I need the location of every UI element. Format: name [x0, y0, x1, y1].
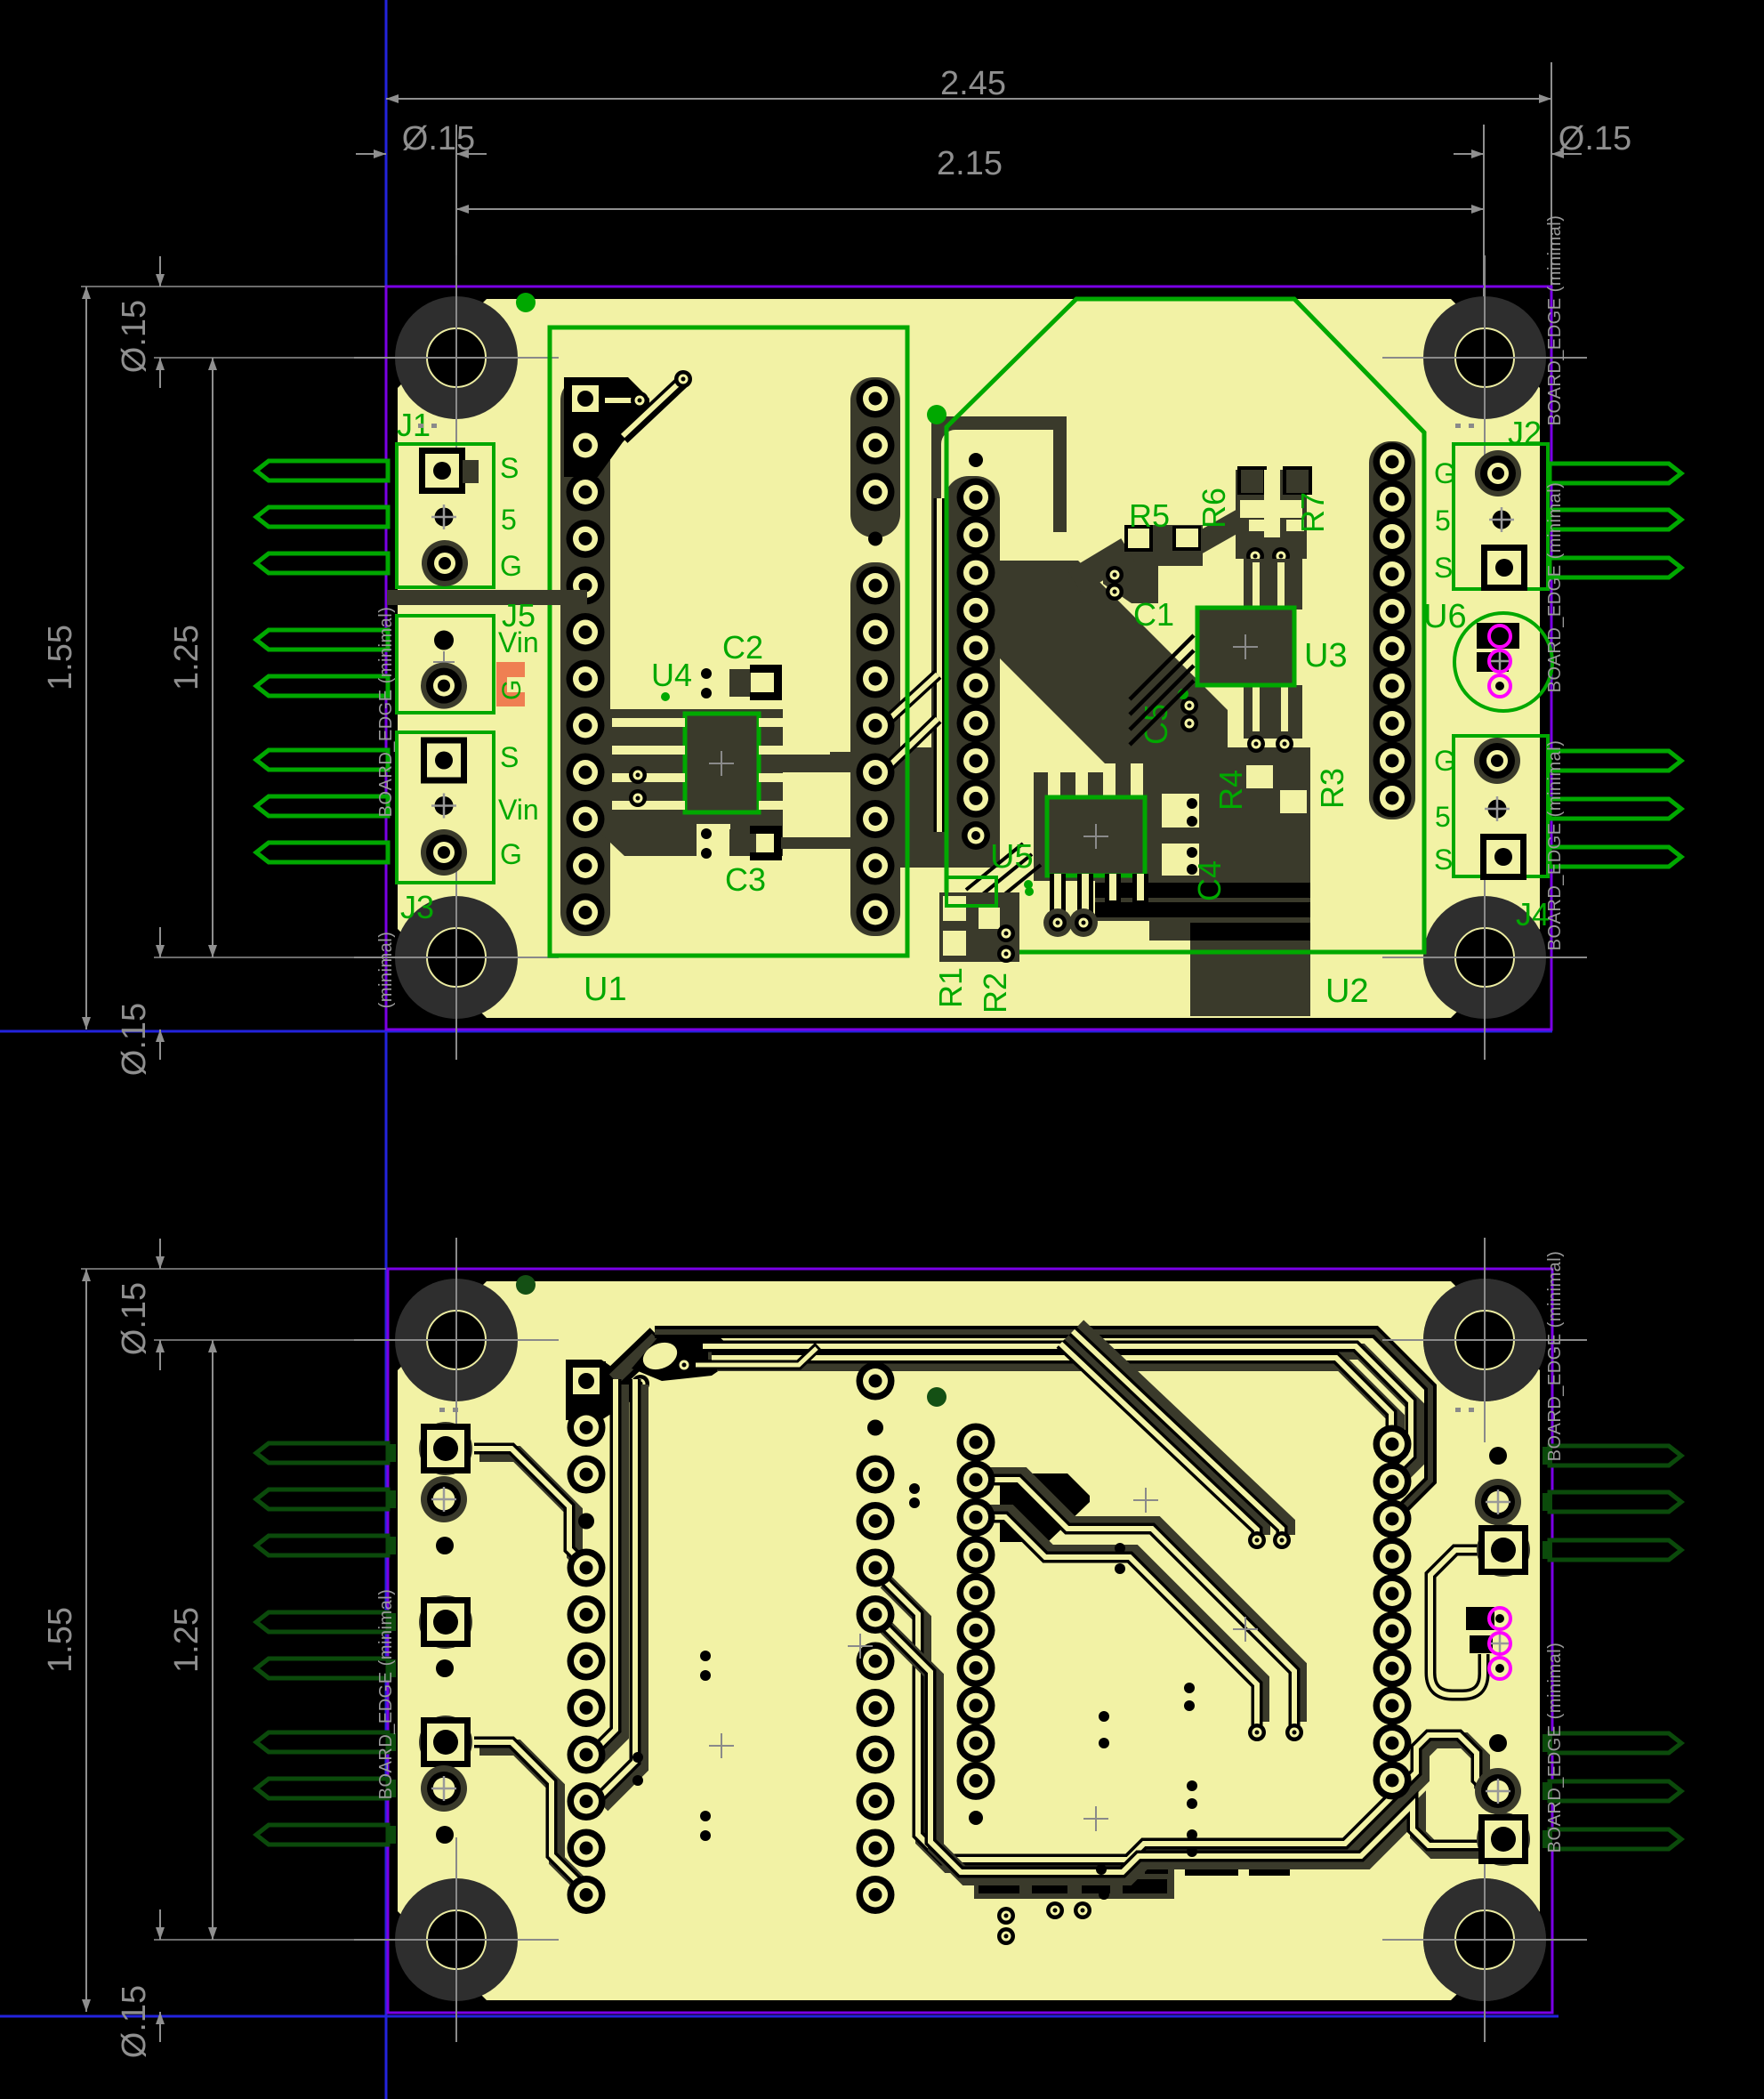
svg-text:S: S: [1434, 844, 1453, 876]
svg-text:U1: U1: [584, 971, 627, 1008]
svg-text:G: G: [500, 550, 522, 582]
svg-text:5: 5: [501, 504, 517, 536]
svg-text:Ø.15: Ø.15: [116, 1985, 153, 2058]
svg-text:BOARD_EDGE (minimal): BOARD_EDGE (minimal): [1545, 1643, 1565, 1853]
svg-text:BOARD_EDGE (minimal): BOARD_EDGE (minimal): [1545, 215, 1565, 426]
svg-text:Ø.15: Ø.15: [116, 300, 153, 373]
svg-text:C1: C1: [1133, 596, 1174, 633]
svg-text:C5: C5: [1138, 704, 1174, 745]
svg-text:G: G: [1434, 457, 1456, 489]
svg-text:1.25: 1.25: [168, 625, 205, 690]
svg-text:U3: U3: [1304, 637, 1348, 674]
svg-text:G: G: [497, 680, 527, 700]
svg-text:C2: C2: [722, 629, 763, 666]
svg-text:Ø.15: Ø.15: [116, 1282, 153, 1355]
svg-text:U4: U4: [651, 657, 692, 693]
svg-text:BOARD_EDGE (minimal): BOARD_EDGE (minimal): [376, 1589, 396, 1800]
svg-text:Ø.15: Ø.15: [1559, 120, 1631, 157]
svg-text:BOARD_EDGE (minimal): BOARD_EDGE (minimal): [376, 607, 396, 818]
svg-text:5: 5: [1435, 505, 1451, 537]
svg-text:5: 5: [1435, 801, 1451, 833]
svg-text:U5: U5: [990, 838, 1034, 876]
svg-text:Ø.15: Ø.15: [116, 1003, 153, 1076]
svg-text:U2: U2: [1325, 973, 1369, 1010]
svg-text:U6: U6: [1423, 598, 1467, 635]
svg-text:1.25: 1.25: [168, 1607, 205, 1673]
svg-text:Vin: Vin: [498, 626, 539, 658]
svg-text:BOARD_EDGE (minimal): BOARD_EDGE (minimal): [1545, 1251, 1565, 1462]
svg-text:C3: C3: [725, 861, 766, 898]
svg-text:BOARD_EDGE (minimal): BOARD_EDGE (minimal): [1545, 482, 1565, 693]
svg-text:(minimal): (minimal): [376, 932, 396, 1009]
svg-text:R3: R3: [1314, 768, 1350, 809]
svg-text:J3: J3: [400, 889, 434, 925]
svg-text:Vin: Vin: [498, 794, 539, 826]
svg-text:R4: R4: [1212, 770, 1249, 811]
svg-text:1.55: 1.55: [42, 625, 79, 690]
svg-text:1.55: 1.55: [42, 1607, 79, 1673]
svg-text:R1: R1: [932, 967, 969, 1008]
svg-text:S: S: [1434, 552, 1453, 584]
svg-text:C4: C4: [1191, 860, 1228, 901]
svg-text:S: S: [500, 452, 519, 484]
svg-text:2.45: 2.45: [940, 65, 1006, 102]
svg-text:R6: R6: [1196, 488, 1232, 529]
svg-text:S: S: [500, 741, 519, 773]
svg-text:G: G: [500, 838, 522, 870]
svg-text:J1: J1: [397, 407, 431, 443]
svg-text:R5: R5: [1129, 497, 1170, 534]
svg-text:R7: R7: [1294, 492, 1331, 533]
svg-text:R2: R2: [977, 973, 1013, 1013]
svg-text:2.15: 2.15: [937, 145, 1003, 182]
svg-text:G: G: [1434, 745, 1456, 777]
svg-text:BOARD_EDGE (minimal): BOARD_EDGE (minimal): [1545, 740, 1565, 951]
svg-text:J2: J2: [1508, 415, 1542, 451]
